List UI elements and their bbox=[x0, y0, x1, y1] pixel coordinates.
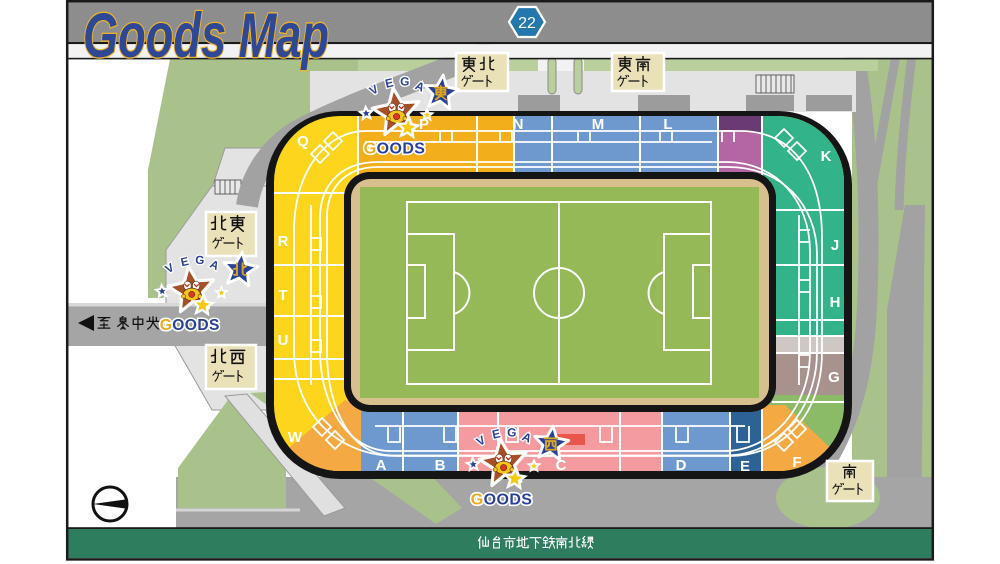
svg-text:K: K bbox=[821, 148, 832, 165]
svg-text:L: L bbox=[663, 116, 672, 133]
svg-text:J: J bbox=[831, 237, 839, 254]
svg-text:R: R bbox=[278, 233, 289, 250]
svg-text:W: W bbox=[288, 429, 303, 446]
svg-text:F: F bbox=[792, 454, 801, 471]
svg-text:A: A bbox=[376, 457, 387, 474]
svg-text:Q: Q bbox=[297, 133, 309, 150]
svg-text:N: N bbox=[513, 116, 524, 133]
svg-text:H: H bbox=[830, 294, 841, 311]
svg-text:D: D bbox=[676, 457, 687, 474]
svg-text:M: M bbox=[592, 116, 605, 133]
svg-text:G: G bbox=[828, 369, 840, 386]
svg-text:Goods Map: Goods Map bbox=[83, 1, 329, 71]
svg-text:U: U bbox=[278, 332, 289, 349]
svg-text:22: 22 bbox=[518, 15, 536, 32]
svg-text:E: E bbox=[740, 458, 750, 475]
svg-text:B: B bbox=[435, 457, 446, 474]
svg-text:T: T bbox=[278, 287, 287, 304]
